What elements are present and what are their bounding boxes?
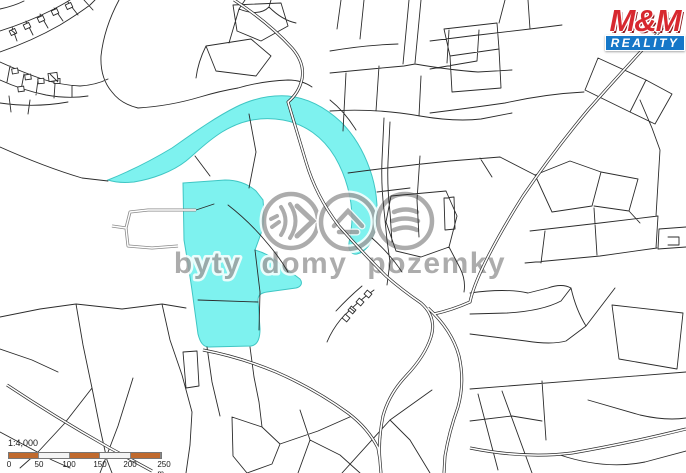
watermark-text: byty domy pozemky — [174, 247, 506, 280]
brand-logo: M&M REALITY — [602, 6, 686, 51]
scale-bar: 1:4,000 0 50 100 150 200 250 m — [6, 438, 176, 470]
scale-tick-labels: 0 50 100 150 200 250 m — [6, 460, 176, 470]
scale-segment — [9, 453, 39, 458]
map-view: byty domy pozemky — [0, 0, 686, 473]
logo-subtitle: REALITY — [605, 35, 685, 51]
signal-waves-icon — [264, 194, 318, 248]
scale-tick: 100 — [62, 460, 75, 469]
logo-name: M&M — [602, 6, 686, 35]
scale-tick: 50 — [35, 460, 44, 469]
scale-segment — [100, 453, 130, 458]
scale-tick: 250 m — [157, 460, 170, 473]
scale-segment — [70, 453, 100, 458]
scale-ratio-label: 1:4,000 — [8, 438, 176, 448]
parcel-boundaries — [0, 0, 686, 473]
scale-segment — [131, 453, 161, 458]
scale-bar-track — [8, 452, 162, 459]
scale-tick: 200 — [123, 460, 136, 469]
scale-segment — [39, 453, 69, 458]
scale-tick: 0 — [7, 460, 11, 469]
cadastral-map-canvas[interactable]: byty domy pozemky — [0, 0, 686, 473]
scale-tick: 150 — [93, 460, 106, 469]
